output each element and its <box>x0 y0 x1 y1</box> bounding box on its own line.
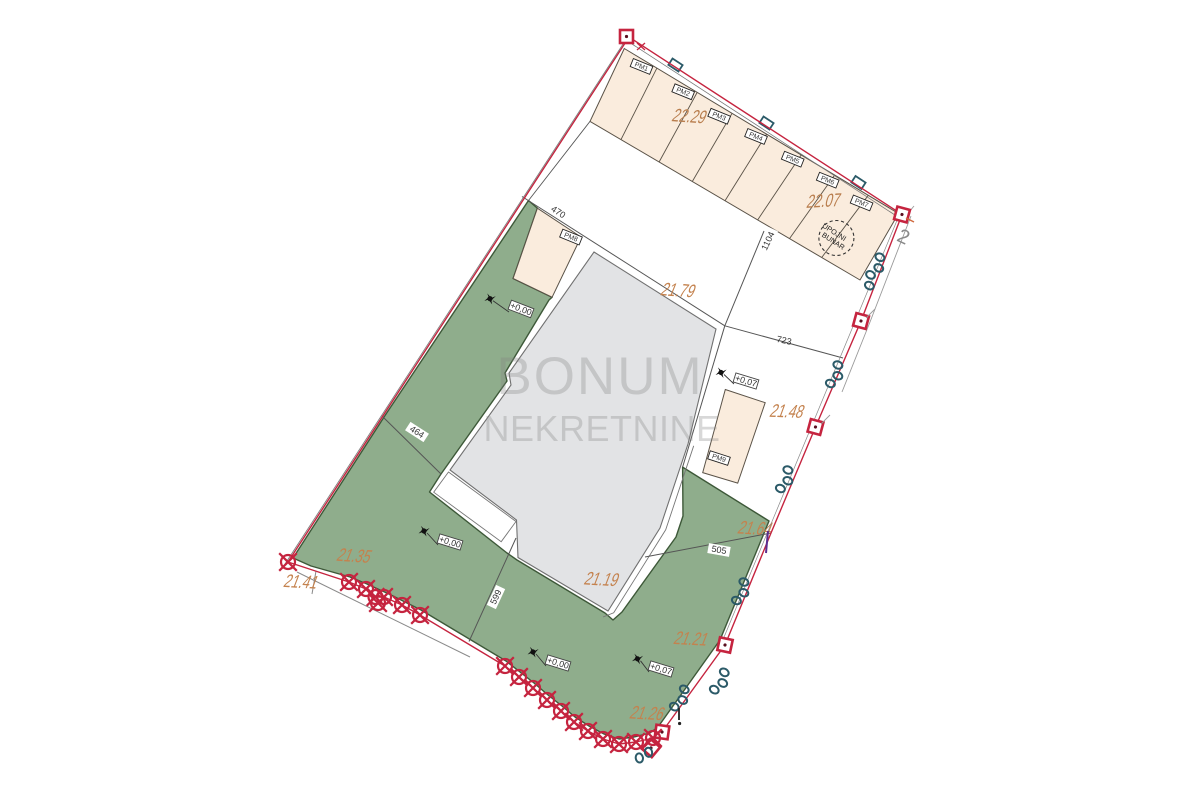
svg-text:NEKRETNINE: NEKRETNINE <box>483 408 720 449</box>
svg-text:BONUM: BONUM <box>496 347 703 406</box>
svg-text:22.07: 22.07 <box>804 190 843 213</box>
